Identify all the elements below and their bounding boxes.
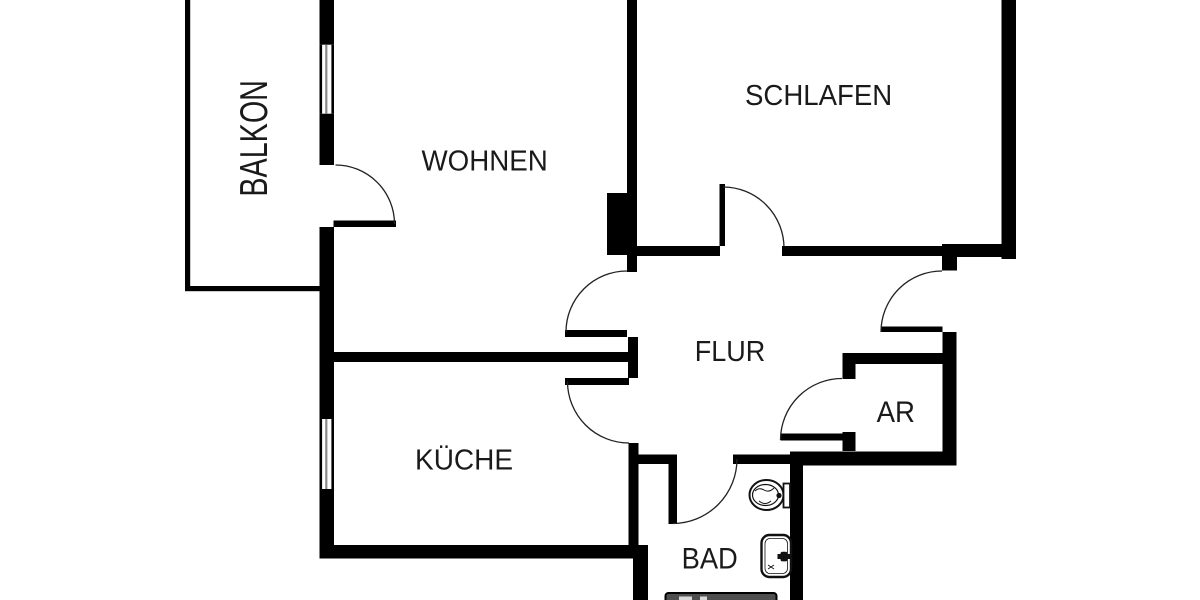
svg-text:BAD: BAD	[682, 542, 738, 575]
svg-text:BALKON: BALKON	[233, 80, 276, 197]
svg-text:SCHLAFEN: SCHLAFEN	[745, 80, 892, 112]
svg-text:AR: AR	[877, 396, 915, 429]
svg-text:WOHNEN: WOHNEN	[422, 145, 548, 177]
svg-text:KÜCHE: KÜCHE	[415, 445, 513, 477]
svg-text:FLUR: FLUR	[695, 336, 766, 368]
